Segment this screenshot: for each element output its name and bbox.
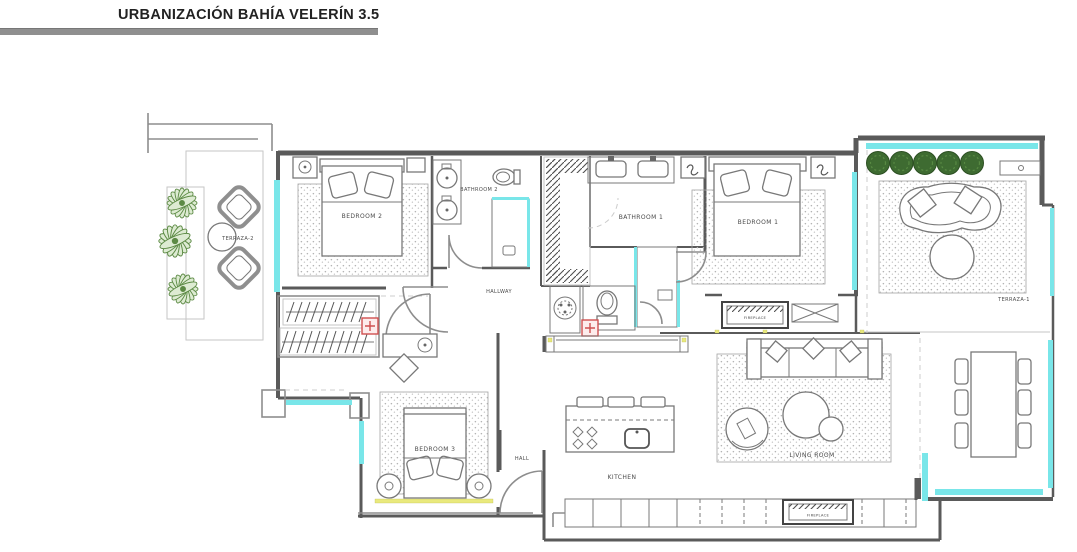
bush-icon [867, 152, 890, 175]
toilet [493, 169, 520, 185]
side-table [467, 474, 491, 498]
curved-sofa [900, 183, 1001, 232]
fireplace-kitchen: FIREPLACE [783, 500, 853, 524]
bed [320, 159, 404, 256]
terrace-table [930, 235, 974, 279]
hall-label: HALL [515, 456, 529, 462]
floor-plan-page: URBANIZACIÓN BAHÍA VELERÍN 3.5 [0, 0, 1077, 552]
cabinet-x [792, 304, 838, 322]
kitchen-island [566, 397, 674, 452]
entry-bench [546, 336, 688, 352]
bathroom-2-label: BATHROOM 2 [460, 187, 498, 193]
bed [404, 408, 466, 498]
bar-stool [608, 397, 634, 407]
side-table [819, 417, 843, 441]
red-plus-marker [362, 318, 378, 334]
plant-icon [158, 224, 191, 257]
door-arc [449, 235, 482, 268]
bathroom-1-label: BATHROOM 1 [619, 214, 663, 221]
bush-icon [890, 152, 913, 175]
hallway: HALLWAY [278, 287, 688, 382]
hallway-label: HALLWAY [486, 289, 512, 295]
bathroom-2: BATHROOM 2 [433, 160, 530, 268]
sink [596, 161, 626, 177]
bar-stool [641, 397, 665, 407]
sink [638, 161, 668, 177]
terraza-1: TERRAZA-1 [867, 152, 1041, 304]
living-room: LIVING ROOM [717, 338, 891, 462]
terrace-chair [216, 245, 261, 290]
door-arc [386, 294, 430, 338]
shower [492, 197, 530, 267]
floor-plan-drawing: TERRAZA-2 BEDROOM 2 [0, 0, 1077, 552]
bar-stool [577, 397, 603, 407]
armchair [726, 408, 768, 450]
wardrobe [278, 296, 379, 357]
door-arc [588, 198, 618, 228]
plant-icon [168, 274, 199, 305]
bedroom-3: BEDROOM 3 [375, 392, 493, 503]
kitchen-label: KITCHEN [608, 474, 637, 481]
wall-light [1000, 161, 1040, 175]
fireplace-label: FIREPLACE [744, 315, 767, 320]
laundry-closet [550, 286, 580, 333]
red-plus-marker [582, 320, 598, 336]
shower [634, 247, 680, 327]
dining-table [971, 352, 1016, 457]
chair [390, 354, 418, 382]
bedroom-3-label: BEDROOM 3 [415, 446, 456, 453]
fireplace-interior: FIREPLACE [722, 302, 788, 328]
dressing-desk [383, 334, 437, 382]
bedroom-1-label: BEDROOM 1 [738, 219, 779, 226]
wc-niche [550, 286, 635, 336]
toilet [597, 291, 617, 324]
bush-icon [914, 152, 937, 175]
terraza-2: TERRAZA-2 [158, 151, 263, 340]
side-table [377, 474, 401, 498]
kitchen-counter: FIREPLACE [553, 499, 916, 527]
fireplace-label: FIREPLACE [807, 513, 830, 518]
terraza-1-label: TERRAZA-1 [997, 297, 1030, 303]
bush-icon [961, 152, 984, 175]
bed [709, 157, 806, 256]
washing-machine [554, 297, 576, 319]
hall: HALL [500, 456, 542, 513]
plant-icon [167, 188, 198, 219]
bedroom-2-label: BEDROOM 2 [342, 213, 383, 220]
terraza-2-label: TERRAZA-2 [221, 236, 254, 242]
bush-icon [937, 152, 960, 175]
sofa [747, 338, 882, 379]
living-room-label: LIVING ROOM [789, 452, 834, 459]
dining-area [955, 352, 1031, 457]
walk-in-closet [544, 157, 590, 285]
door-arc [500, 471, 542, 513]
